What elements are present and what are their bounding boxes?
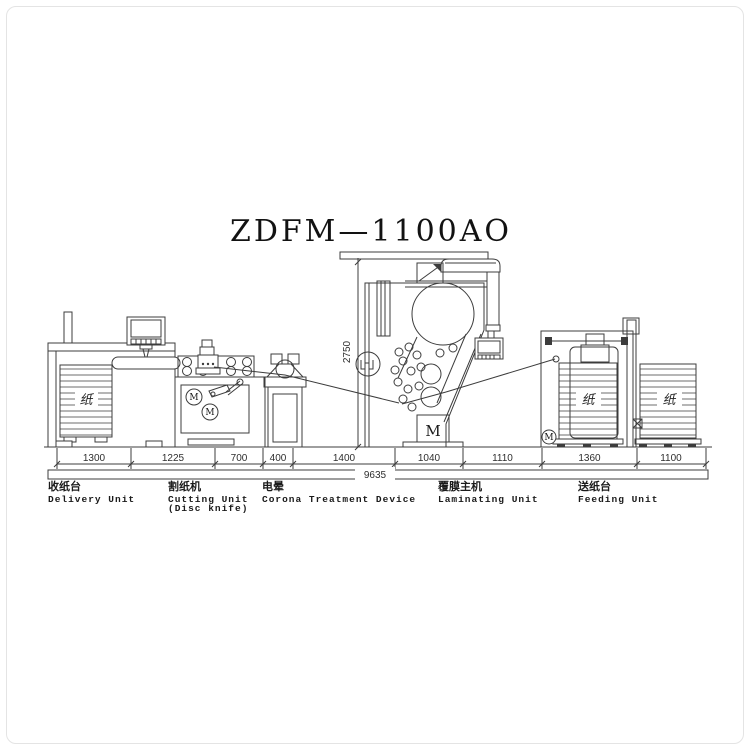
cutting-unit: M M (175, 340, 265, 447)
svg-text:M: M (425, 422, 440, 440)
web-path (214, 356, 559, 404)
dim-1360: 1360 (578, 453, 601, 464)
label-delivery-en: Delivery Unit (48, 494, 135, 505)
machine-line-drawing: ZDFM—1100AO 纸 (0, 0, 750, 750)
label-cutting-en2: (Disc knife) (168, 503, 248, 514)
laminator-operator-panel (475, 331, 503, 359)
svg-text:M: M (189, 393, 198, 403)
main-motor-pedestal: M (403, 415, 463, 447)
pallet (635, 439, 701, 444)
label-feeding-en: Feeding Unit (578, 494, 658, 505)
laminator-top-beam (340, 252, 488, 259)
laminator-left-column (377, 281, 390, 336)
dimension-ticks (54, 448, 709, 469)
corona-treatment-device (264, 354, 306, 447)
label-laminating-zh: 覆膜主机 (438, 479, 482, 493)
main-drum-roller (412, 283, 474, 345)
dim-2750: 2750 (342, 340, 353, 363)
dim-1225: 1225 (162, 453, 185, 464)
label-corona-zh: 电晕 (262, 479, 284, 493)
label-cutting-zh: 割纸机 (168, 479, 201, 493)
label-delivery-zh: 收纸台 (48, 479, 81, 493)
suction-feeder-head (581, 334, 609, 362)
delivery-conveyor-roller (112, 357, 180, 369)
fan-box (417, 263, 443, 283)
diagram-title: ZDFM—1100AO (230, 214, 512, 249)
dim-400: 400 (270, 453, 287, 464)
svg-text:M: M (544, 433, 553, 443)
panel-arm (486, 272, 500, 331)
pallet (553, 439, 623, 444)
dim-total: 9635 (364, 470, 387, 481)
dim-1100: 1100 (660, 453, 682, 464)
delivery-control-panel (127, 317, 165, 362)
dim-1300: 1300 (83, 453, 106, 464)
svg-text:M: M (205, 408, 214, 418)
paper-label: 纸 (79, 392, 94, 407)
delivery-mast (64, 312, 72, 343)
machine-diagram-page: ZDFM—1100AO 纸 (0, 0, 750, 750)
label-laminating-en: Laminating Unit (438, 494, 539, 505)
disc-knife-head (196, 340, 220, 374)
laminating-unit: M (340, 252, 503, 447)
dim-1110: 1110 (492, 453, 513, 464)
overall-dimension: 9635 (48, 467, 708, 481)
motor-badge: M (542, 430, 556, 444)
guide-arm (209, 379, 243, 397)
roller-cluster (391, 343, 457, 411)
unit-labels: 收纸台 Delivery Unit 割纸机 Cutting Unit (Disc… (48, 479, 658, 514)
nip-roller (421, 387, 441, 407)
label-corona-en: Corona Treatment Device (262, 494, 416, 505)
dim-700: 700 (231, 453, 248, 464)
motor-badge: M (186, 389, 202, 405)
nip-roller (421, 364, 441, 384)
feeding-unit: 纸 M 纸 (541, 318, 701, 448)
paper-label: 纸 (662, 392, 677, 407)
height-dimension: 2750 (342, 258, 361, 450)
label-feeding-zh: 送纸台 (577, 479, 611, 493)
laminator-cap (441, 259, 500, 272)
dimension-chain: 1300 1225 700 400 1400 1040 1110 1360 11… (54, 448, 709, 469)
film-roll-icon (361, 360, 373, 369)
film-unwind-roll (356, 352, 380, 376)
dim-1040: 1040 (418, 453, 441, 464)
delivery-unit: 纸 (48, 312, 180, 447)
paper-label: 纸 (581, 392, 596, 407)
dim-1400: 1400 (333, 453, 356, 464)
motor-badge: M (202, 404, 218, 420)
